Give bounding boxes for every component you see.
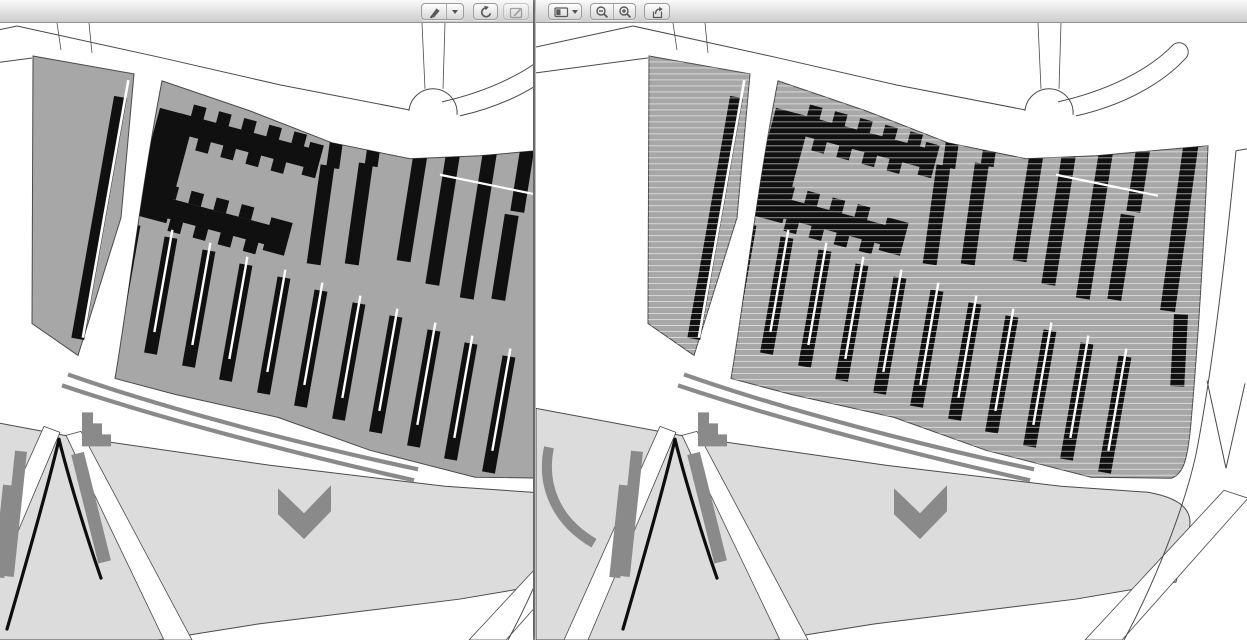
- window-left-toolbar: [0, 0, 533, 23]
- zoom-out-button[interactable]: [591, 4, 613, 19]
- zoom-in-button[interactable]: [613, 4, 636, 19]
- view-mode-dropdown[interactable]: [571, 4, 581, 19]
- markup-button[interactable]: [503, 3, 529, 20]
- site-plan-document-right: [536, 23, 1247, 640]
- rotate-left-button[interactable]: [473, 3, 498, 20]
- site-plan-document-left: [0, 23, 533, 640]
- markup-pencil-icon: [509, 5, 523, 19]
- zoom-out-icon: [595, 5, 609, 19]
- view-mode-button[interactable]: [548, 3, 582, 20]
- chevron-down-icon: [452, 10, 458, 14]
- annotate-dropdown[interactable]: [446, 4, 462, 19]
- rotate-left-icon: [479, 5, 493, 19]
- window-right: [535, 0, 1247, 640]
- zoom-in-icon: [618, 5, 632, 19]
- share-button[interactable]: [644, 3, 670, 20]
- chevron-down-icon: [572, 10, 578, 14]
- sidebar-view-icon: [550, 4, 571, 19]
- window-left: [0, 0, 533, 640]
- annotate-button[interactable]: [421, 3, 464, 20]
- marker-pen-icon: [424, 4, 446, 19]
- window-right-toolbar: [536, 0, 1247, 23]
- desktop: { "windows": { "left": { "role": "docume…: [0, 0, 1247, 640]
- share-icon: [650, 5, 664, 19]
- zoom-controls: [590, 3, 636, 20]
